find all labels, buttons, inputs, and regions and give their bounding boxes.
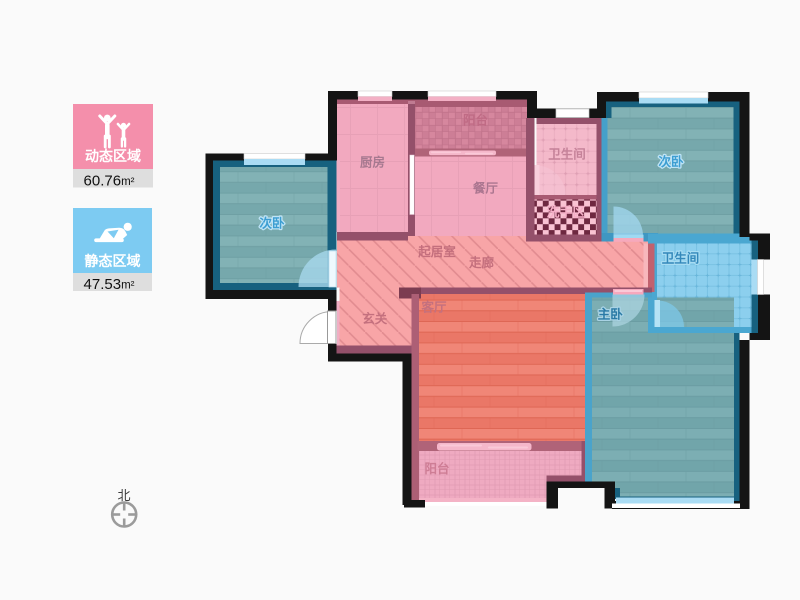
svg-text:卫生间: 卫生间 xyxy=(662,250,700,265)
svg-text:卫生间: 卫生间 xyxy=(548,146,586,161)
svg-text:玄关: 玄关 xyxy=(362,311,388,326)
svg-text:47.53m²: 47.53m² xyxy=(84,276,135,293)
svg-text:次卧: 次卧 xyxy=(658,154,684,169)
svg-text:厨房: 厨房 xyxy=(360,155,385,170)
svg-text:餐厅: 餐厅 xyxy=(472,181,499,196)
svg-text:动态区域: 动态区域 xyxy=(85,148,141,164)
svg-text:北: 北 xyxy=(117,488,130,503)
svg-text:起居室: 起居室 xyxy=(417,244,456,259)
svg-text:洗手区: 洗手区 xyxy=(546,205,585,220)
svg-text:主卧: 主卧 xyxy=(598,306,624,321)
svg-text:阳台: 阳台 xyxy=(424,461,449,476)
svg-text:静态区域: 静态区域 xyxy=(85,253,141,269)
svg-text:60.76m²: 60.76m² xyxy=(84,173,135,190)
svg-text:客厅: 客厅 xyxy=(420,299,447,314)
svg-text:走廊: 走廊 xyxy=(469,255,495,270)
svg-text:次卧: 次卧 xyxy=(259,216,285,231)
svg-text:阳台: 阳台 xyxy=(463,113,488,128)
